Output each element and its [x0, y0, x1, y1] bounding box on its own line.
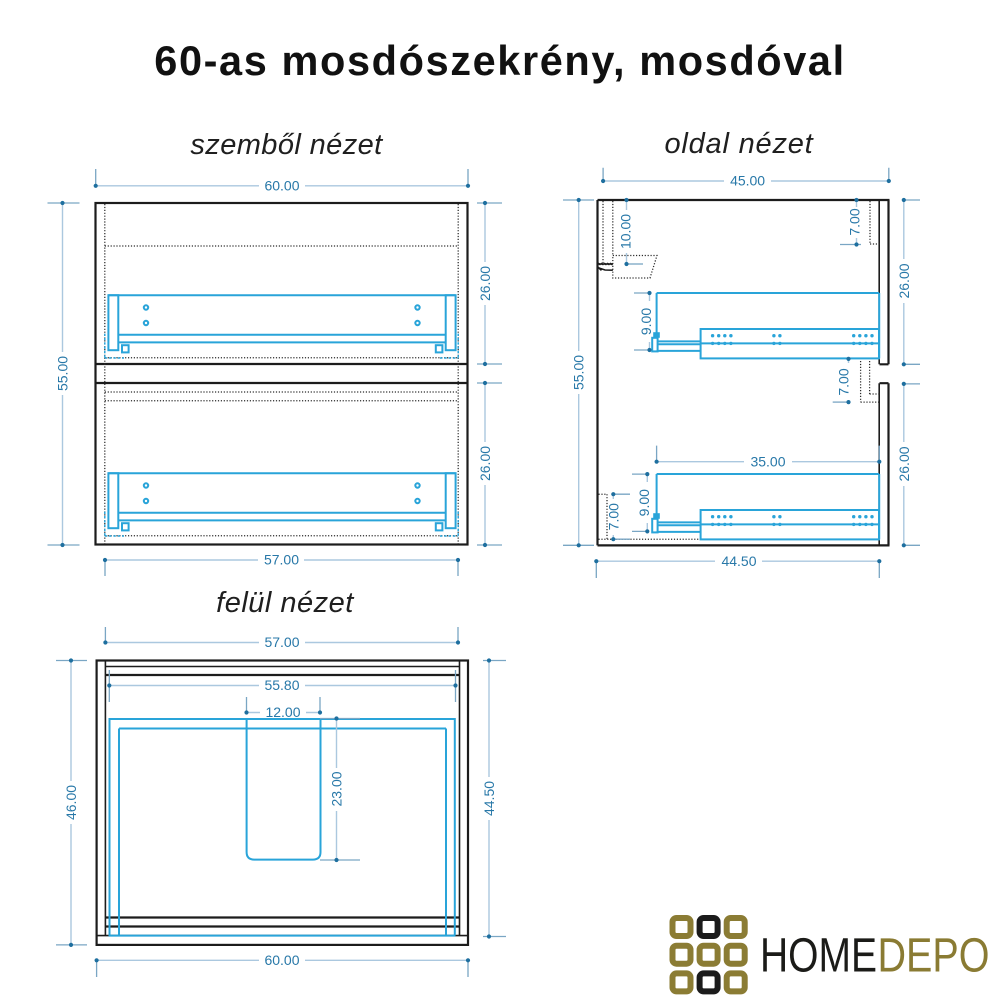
svg-text:26.00: 26.00 — [896, 263, 912, 298]
svg-text:57.00: 57.00 — [264, 634, 299, 650]
svg-text:HOME: HOME — [760, 929, 877, 982]
svg-text:57.00: 57.00 — [264, 552, 299, 568]
svg-text:DEPO: DEPO — [878, 929, 990, 982]
svg-text:12.00: 12.00 — [265, 704, 300, 720]
svg-text:60.00: 60.00 — [264, 178, 299, 194]
svg-text:9.00: 9.00 — [638, 308, 654, 335]
svg-text:9.00: 9.00 — [636, 489, 652, 516]
svg-text:oldal nézet: oldal nézet — [664, 128, 814, 160]
svg-text:55.00: 55.00 — [55, 356, 71, 391]
svg-text:55.80: 55.80 — [264, 677, 299, 693]
svg-text:60.00: 60.00 — [264, 952, 299, 968]
svg-text:26.00: 26.00 — [477, 446, 493, 481]
svg-text:10.00: 10.00 — [618, 214, 634, 249]
svg-text:26.00: 26.00 — [477, 266, 493, 301]
svg-text:7.00: 7.00 — [836, 368, 852, 395]
svg-text:23.00: 23.00 — [329, 771, 345, 806]
svg-text:7.00: 7.00 — [605, 503, 621, 530]
svg-text:44.50: 44.50 — [481, 781, 497, 816]
svg-text:45.00: 45.00 — [730, 173, 765, 189]
svg-text:46.00: 46.00 — [63, 785, 79, 820]
svg-text:26.00: 26.00 — [896, 446, 912, 481]
svg-text:felül nézet: felül nézet — [216, 587, 355, 619]
svg-text:60-as mosdószekrény, mosdóval: 60-as mosdószekrény, mosdóval — [154, 37, 845, 84]
svg-text:szemből nézet: szemből nézet — [190, 129, 384, 161]
svg-text:35.00: 35.00 — [750, 453, 785, 469]
svg-text:44.50: 44.50 — [721, 553, 756, 569]
svg-text:7.00: 7.00 — [847, 208, 863, 235]
svg-text:55.00: 55.00 — [571, 355, 587, 390]
